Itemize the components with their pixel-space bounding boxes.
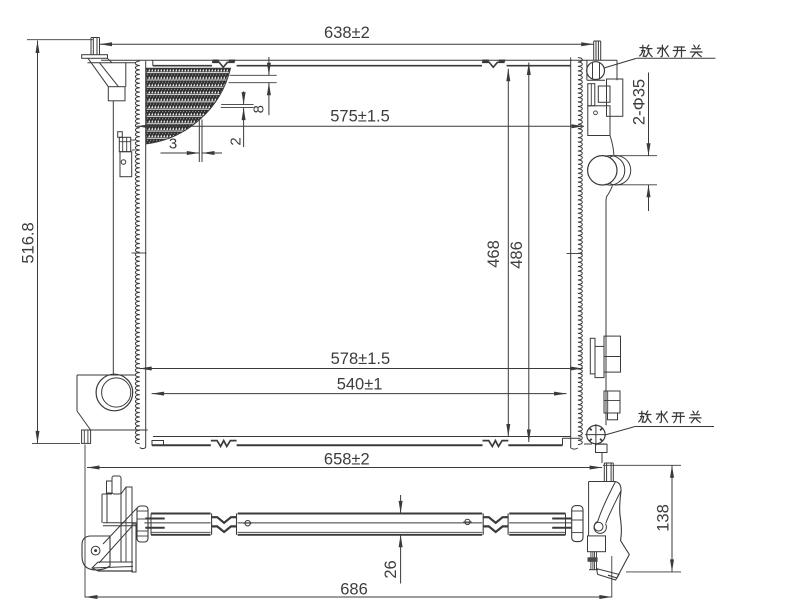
svg-text:468: 468 <box>485 240 503 268</box>
svg-text:2-Φ35: 2-Φ35 <box>631 79 649 125</box>
svg-text:686: 686 <box>340 580 368 598</box>
svg-text:486: 486 <box>508 241 526 269</box>
svg-text:658±2: 658±2 <box>324 451 370 469</box>
svg-text:540±1: 540±1 <box>337 375 383 393</box>
svg-text:26: 26 <box>382 560 400 578</box>
svg-text:138: 138 <box>655 504 673 532</box>
svg-text:638±2: 638±2 <box>324 24 370 42</box>
svg-text:575±1.5: 575±1.5 <box>330 108 390 126</box>
svg-text:8: 8 <box>251 105 268 113</box>
svg-text:2: 2 <box>228 137 245 145</box>
svg-text:578±1.5: 578±1.5 <box>331 350 391 368</box>
svg-text:516.8: 516.8 <box>20 222 38 263</box>
svg-text:3: 3 <box>169 135 177 152</box>
